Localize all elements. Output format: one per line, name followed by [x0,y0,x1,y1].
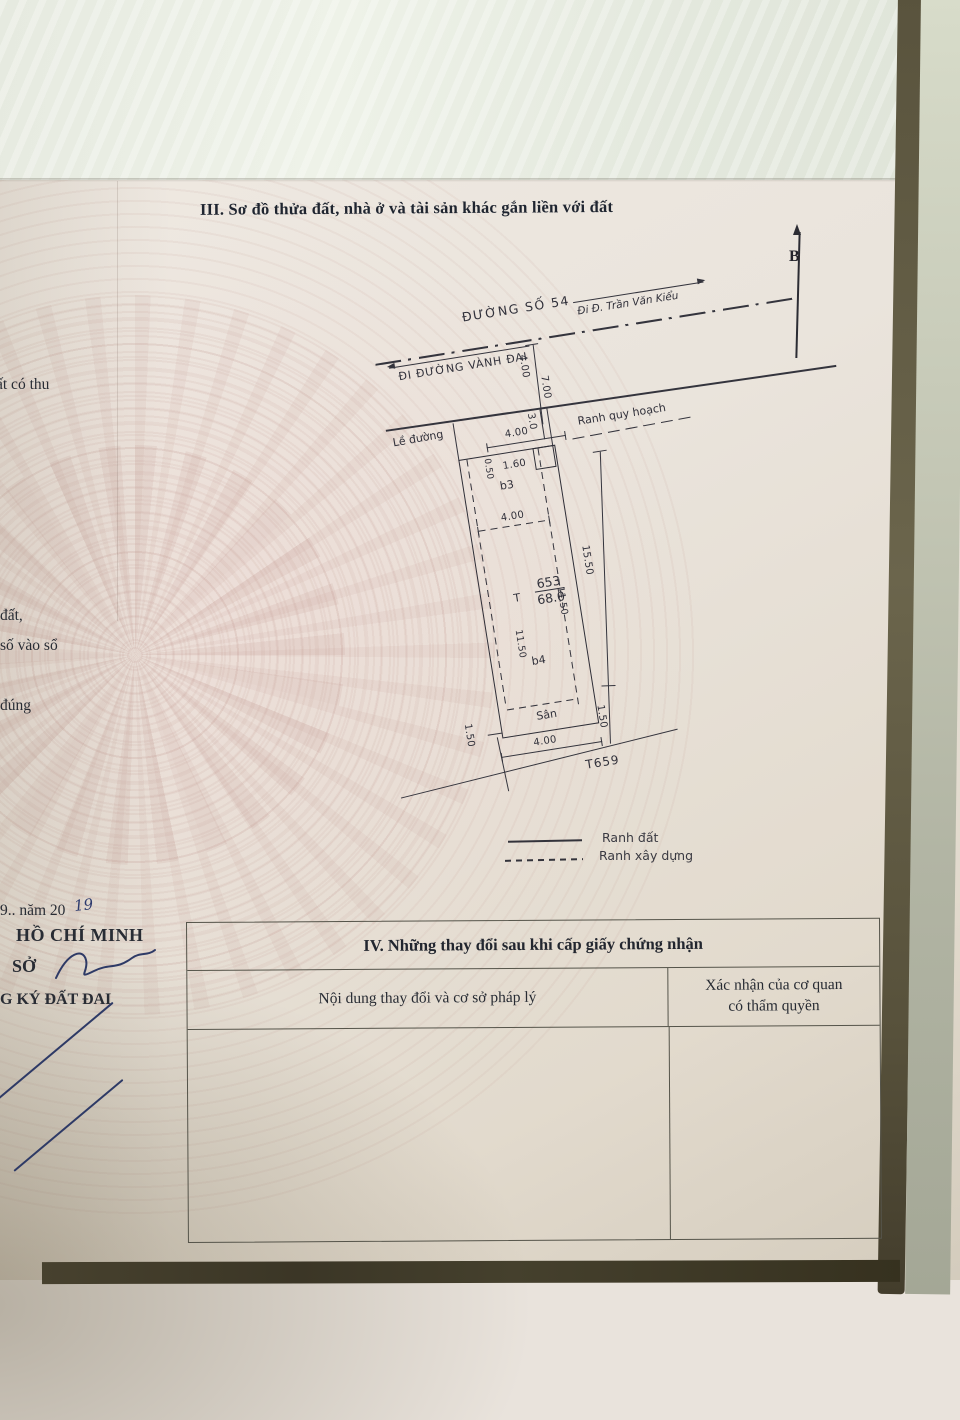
fragment-agency-so: SỞ [12,956,36,977]
dim-tick [600,737,603,746]
fragment-text-2: đất, [0,607,23,625]
dim-bottom-width: 4.00 [533,734,558,749]
dim-tick [548,515,551,524]
outer-boundary-right [600,452,611,744]
fragment-agency-dkdd: G KÝ ĐẤT ĐAI [0,991,111,1009]
road-name-label: ĐƯỜNG SỐ 54 [461,293,571,325]
boundary-connector-left [453,423,460,461]
cadastral-diagram: ĐƯỜNG SỐ 54 ĐI ĐƯỜNG VÀNH ĐAI Đi Đ. Trần… [368,211,930,839]
table-header-col2: Xác nhận của cơ quan có thẩm quyền [668,967,879,1026]
dim-tick [488,732,503,736]
table-header-col2-line2: có thẩm quyền [728,996,819,1017]
legend-label-construction-boundary: Ranh xây dựng [599,848,693,863]
fragment-text-4: đúng [0,697,31,715]
fragment-date-line: 9.. năm 20 [0,902,65,920]
arrow-left-icon [386,363,395,370]
background-surface-bottom [42,1260,900,1284]
zone-b3-label: b3 [499,478,515,493]
table-header-col1: Nội dung thay đổi và cơ sở pháp lý [187,968,668,1029]
dim-road-width: 4.00 [517,354,532,379]
fragment-text-3: số vào sổ [0,637,58,655]
corner-structure [532,445,556,470]
parcel-653-outline: 0.50 1.60 b3 4.00 T 653 68.0 11.50 11.50… [458,445,599,739]
left-edge-extension [497,737,510,791]
legend-label-land-boundary: Ranh đất [602,830,658,845]
table-header-col2-line1: Xác nhận của cơ quan [705,975,842,997]
dim-tick [564,431,567,440]
dim-depth-right: 15.50 [579,544,595,575]
section-3-title: III. Sơ đồ thửa đất, nhà ở và tài sản kh… [200,196,720,220]
dim-inner-width: 4.00 [500,509,525,524]
dim-tick [602,685,616,687]
dim-side-left: 11.50 [513,629,528,659]
section-4-title: IV. Những thay đổi sau khi cấp giấy chứn… [187,919,879,971]
boundary-connector-right [546,408,553,446]
table-body-row [188,1026,881,1242]
table-header-row: Nội dung thay đổi và cơ sở pháp lý Xác n… [187,967,879,1030]
dim-curb-width: 4.00 [504,426,529,441]
dim-top-left: 0.50 [482,458,495,481]
t-mark: T [513,591,522,605]
adjacent-parcel-label: T659 [584,753,620,772]
table-body-col1 [188,1027,671,1242]
curb-label: Lề đường [392,428,445,450]
dim-yard-right: 1.50 [594,704,609,729]
dim-tick [525,343,538,346]
construction-boundary-left [466,460,506,707]
section-4-table: IV. Những thay đổi sau khi cấp giấy chứn… [186,918,882,1243]
dim-top-right: 1.60 [502,458,527,473]
dim-road-width2: 7.00 [538,375,553,400]
handwritten-year: 19 [73,895,94,915]
arrow-right-icon [697,277,706,284]
fragment-text-1: ất có thu [0,376,49,394]
handwritten-signature [50,940,160,992]
dim-yard-left: 1.50 [462,723,477,748]
yard-label: Sân [535,707,557,723]
glossy-surface-top [0,0,960,180]
zone-b4-label: b4 [531,653,547,668]
table-body-col2 [670,1026,881,1239]
